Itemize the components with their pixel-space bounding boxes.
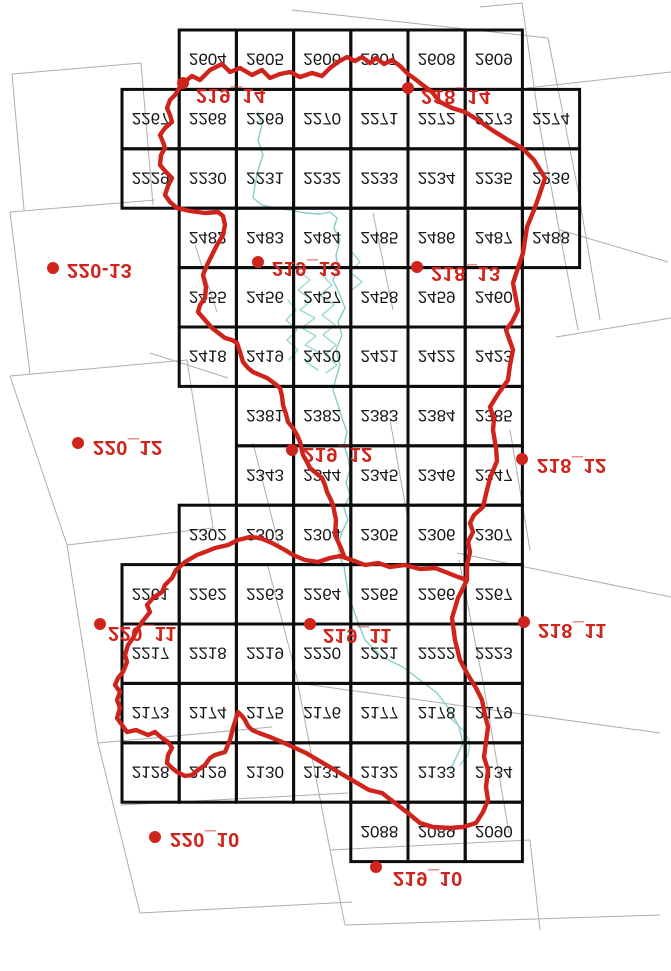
grid-cell-number: 2302: [189, 525, 227, 544]
grid-cell-number: 2176: [303, 703, 341, 722]
sheet-label: 219_12: [303, 443, 373, 465]
grid-cell-number: 2484: [303, 228, 341, 247]
grid-cell-number: 2270: [303, 109, 341, 128]
grid-cell-number: 2175: [246, 703, 284, 722]
grid-cell-number: 2233: [360, 169, 398, 188]
river-path: [253, 112, 463, 770]
sheet-outline-line: [10, 376, 67, 545]
grid-cell-number: 2460: [475, 287, 513, 306]
river-path: [286, 300, 298, 360]
sheet-label: 219_14: [196, 84, 266, 106]
sheet-outline-line: [10, 360, 187, 376]
sheet-outline-line: [530, 840, 540, 930]
grid-cell-number: 2345: [360, 466, 398, 485]
grid-cell-number: 2268: [189, 109, 227, 128]
grid-cell-number: 2486: [418, 228, 456, 247]
sheet-label: 220_11: [108, 622, 177, 644]
grid-cell-number: 2236: [532, 169, 570, 188]
grid-cell-number: 2230: [189, 169, 227, 188]
sheet-label: 218_13: [431, 262, 501, 284]
sheet-label: 220-13: [67, 259, 132, 281]
grid-cell-number: 2483: [246, 228, 284, 247]
sheet-label: 219_13: [272, 257, 342, 279]
sheet-outline-line: [578, 190, 600, 320]
grid-cell-number: 2232: [303, 169, 341, 188]
sheet-outline-line: [67, 545, 98, 743]
sheet-dot: [47, 262, 59, 274]
grid-cell-number: 2264: [303, 584, 341, 603]
sheet-outline-line: [345, 915, 660, 925]
grid-cell-number: 2422: [418, 347, 456, 366]
grid-cell-number: 2488: [532, 228, 570, 247]
grid-cell-number: 2177: [360, 703, 398, 722]
grid-cell-number: 2382: [303, 406, 341, 425]
grid-cell-number: 2222: [418, 644, 456, 663]
sheet-label: 218_12: [537, 454, 607, 476]
grid-cell-number: 2487: [475, 228, 513, 247]
sheet-dot: [518, 616, 530, 628]
grid-cell-number: 2273: [475, 109, 513, 128]
grid-cell-number: 2271: [360, 109, 398, 128]
grid-cell-number: 2421: [360, 347, 398, 366]
grid-cell-number: 2174: [189, 703, 227, 722]
sheet-outline-line: [330, 850, 345, 925]
sheet-dot: [177, 77, 189, 89]
sheet-outline-line: [510, 430, 530, 550]
sheet-outline-line: [527, 72, 671, 88]
sheet-dot: [252, 256, 264, 268]
sheet-label: 218_14: [421, 85, 491, 107]
sheet-dot: [402, 82, 414, 94]
grid-cell-number: 2383: [360, 406, 398, 425]
sheet-outline-line: [12, 63, 141, 74]
grid-cell-number: 2265: [360, 584, 398, 603]
sheet-label: 218_11: [538, 619, 607, 641]
grid-cell-number: 2088: [360, 822, 398, 841]
grid-cell-number: 2234: [418, 169, 456, 188]
sheet-outline-line: [292, 10, 548, 38]
sheet-outline-line: [480, 3, 522, 7]
grid-cell-number: 2128: [132, 763, 170, 782]
grid-cell-number: 2263: [246, 584, 284, 603]
sheet-dot: [149, 831, 161, 843]
grid-cell-number: 2179: [475, 703, 513, 722]
grid-cell-number: 2418: [189, 347, 227, 366]
grid-cell-number: 2274: [532, 109, 570, 128]
grid-cell-number: 2217: [132, 644, 170, 663]
grid-cell-number: 2173: [132, 703, 170, 722]
grid-cell-number: 2090: [475, 822, 513, 841]
grid-cell-number: 2267: [475, 584, 513, 603]
grid-cell-number: 2457: [303, 287, 341, 306]
sheet-outline-line: [10, 200, 155, 212]
sheet-outline-line: [556, 318, 671, 337]
grid-cell-number: 2420: [303, 347, 341, 366]
sheet-dot: [72, 437, 84, 449]
grid-cell-number: 2130: [246, 763, 284, 782]
map-index-sheet: 2604260526062607260826092267226822692270…: [0, 0, 671, 971]
grid-cell-number: 2269: [246, 109, 284, 128]
grid-cell-number: 2485: [360, 228, 398, 247]
grid-cell-number: 2609: [475, 50, 513, 69]
grid-cell-number: 2458: [360, 287, 398, 306]
grid-cell-number: 2384: [418, 406, 456, 425]
sheet-outline-line: [140, 902, 352, 913]
sheet-dot: [94, 618, 106, 630]
grid-cell-number: 2419: [246, 347, 284, 366]
grid-cell-number: 2178: [418, 703, 456, 722]
sheet-label: 220_10: [170, 828, 240, 850]
grid-cell-number: 2266: [418, 584, 456, 603]
sheet-label: 220_12: [93, 436, 163, 458]
grid-cell-number: 2608: [418, 50, 456, 69]
grid-cell-number: 2456: [246, 287, 284, 306]
grid-cell-number: 2218: [189, 644, 227, 663]
sheet-label: 219_11: [323, 624, 392, 646]
grid-cell-number: 2223: [475, 644, 513, 663]
grid-cell-number: 2272: [418, 109, 456, 128]
grid-cell-number: 2235: [475, 169, 513, 188]
grid-cell-number: 2219: [246, 644, 284, 663]
grid-cell-number: 2423: [475, 347, 513, 366]
grid-cell-number: 2134: [475, 763, 513, 782]
sheet-outline-line: [12, 74, 24, 210]
grid-cell-number: 2306: [418, 525, 456, 544]
sheet-dot: [304, 618, 316, 630]
grid-cell-number: 2262: [189, 584, 227, 603]
grid-cell-number: 2305: [360, 525, 398, 544]
grid-cell-number: 2605: [246, 50, 284, 69]
sheet-dot: [516, 453, 528, 465]
sheet-dot: [370, 861, 382, 873]
grid-cell-number: 2307: [475, 525, 513, 544]
grid-cell-number: 2231: [246, 169, 284, 188]
map-canvas: 2604260526062607260826092267226822692270…: [0, 0, 671, 971]
grid-cell-number: 2346: [418, 466, 456, 485]
sheet-outline-line: [10, 212, 30, 374]
grid-cell-number: 2343: [246, 466, 284, 485]
sheet-dot: [411, 261, 423, 273]
sheet-outline-line: [560, 230, 668, 262]
sheet-label: 219_10: [393, 867, 463, 889]
sheet-dot: [286, 444, 298, 456]
grid-cell-number: 2459: [418, 287, 456, 306]
grid-cell-number: 2133: [418, 763, 456, 782]
grid-cell-number: 2267: [132, 109, 170, 128]
grid-cell-number: 2132: [360, 763, 398, 782]
grid-cell-number: 2381: [246, 406, 284, 425]
